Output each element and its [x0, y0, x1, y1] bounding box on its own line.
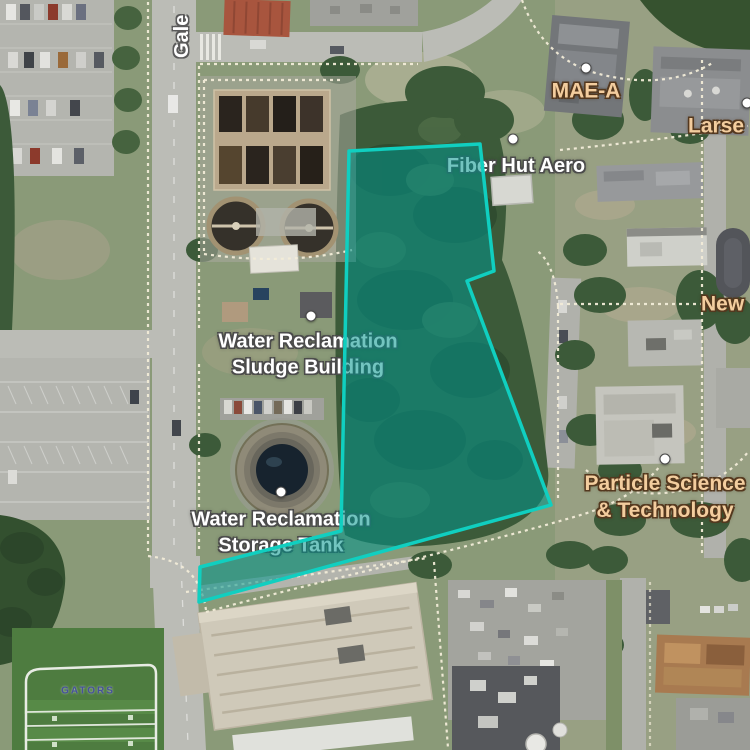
poi-marker-storage-tank[interactable]: [276, 487, 287, 498]
poi-marker-larsen[interactable]: [742, 98, 750, 109]
poi-label-sludge-building[interactable]: Water Reclamation Sludge Building: [218, 329, 397, 380]
building-label-larsen[interactable]: Larse: [688, 114, 744, 141]
building-label-line: Particle Science: [584, 471, 745, 498]
street-label-gale: Gale: [170, 15, 196, 58]
field-painted-text: GATORS: [61, 686, 115, 699]
building-label-newell[interactable]: New: [701, 292, 744, 319]
poi-label-line: Water Reclamation: [218, 329, 397, 355]
map-labels: Gale Fiber Hut Aero MAE-A Larse New Wate…: [0, 0, 750, 750]
poi-marker-particle-science[interactable]: [660, 454, 671, 465]
poi-marker-fiber-hut[interactable]: [508, 134, 519, 145]
building-label-mae-a[interactable]: MAE-A: [552, 79, 621, 106]
building-label-line: & Technology: [584, 498, 745, 525]
building-label-particle-science[interactable]: Particle Science & Technology: [584, 471, 745, 525]
poi-label-fiber-hut-aero[interactable]: Fiber Hut Aero: [447, 154, 585, 180]
poi-marker-mae-a[interactable]: [581, 63, 592, 74]
poi-marker-sludge-building[interactable]: [306, 311, 317, 322]
poi-label-storage-tank[interactable]: Water Reclamation Storage Tank: [191, 507, 370, 558]
poi-label-line: Sludge Building: [218, 355, 397, 381]
poi-label-line: Storage Tank: [191, 533, 370, 559]
satellite-map[interactable]: Gale Fiber Hut Aero MAE-A Larse New Wate…: [0, 0, 750, 750]
poi-label-line: Water Reclamation: [191, 507, 370, 533]
